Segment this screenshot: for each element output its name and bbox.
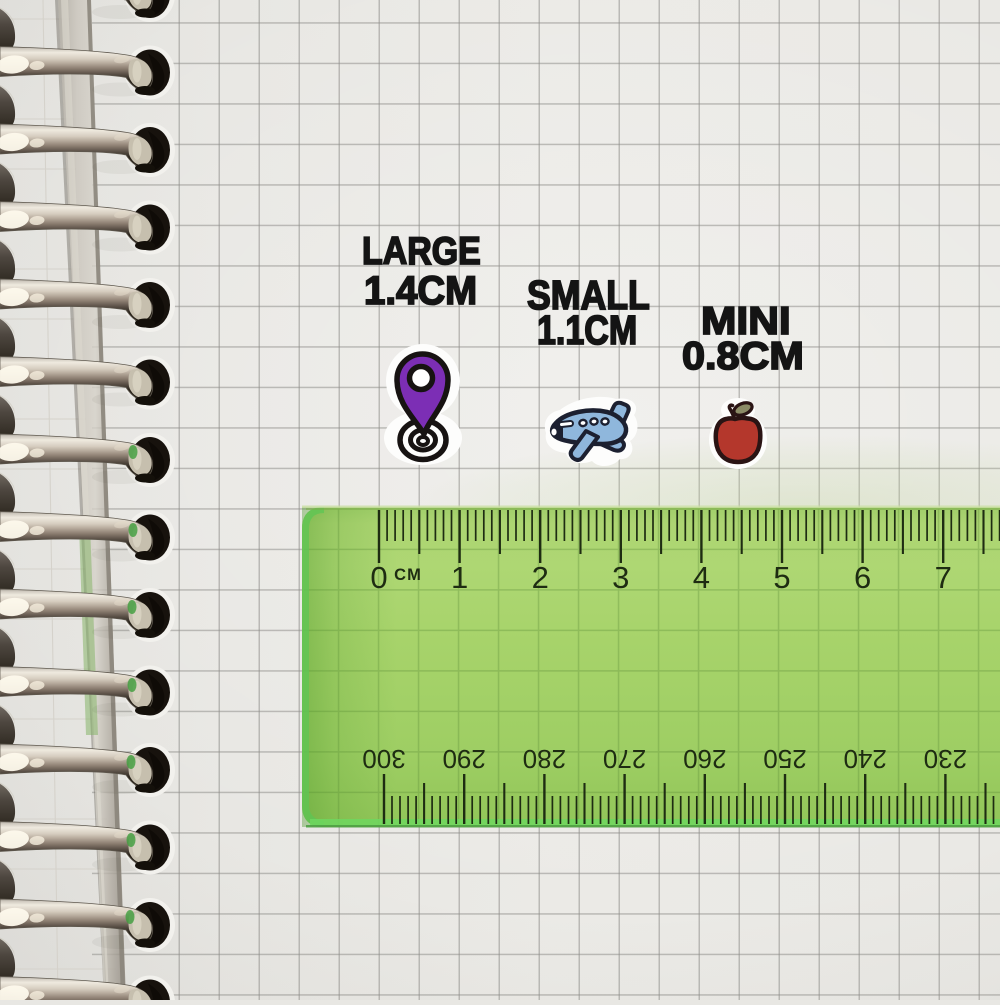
svg-text:CM: CM — [394, 566, 422, 584]
svg-text:0: 0 — [370, 560, 387, 595]
svg-text:300: 300 — [362, 744, 405, 774]
svg-text:290: 290 — [443, 744, 486, 774]
svg-text:4: 4 — [693, 560, 710, 595]
svg-text:7: 7 — [935, 560, 952, 595]
svg-text:280: 280 — [523, 744, 566, 774]
svg-text:2: 2 — [532, 560, 549, 595]
svg-text:270: 270 — [603, 744, 646, 774]
svg-text:230: 230 — [924, 744, 967, 774]
svg-text:1: 1 — [451, 560, 468, 595]
svg-text:3: 3 — [612, 560, 629, 595]
svg-text:260: 260 — [683, 744, 726, 774]
svg-text:250: 250 — [763, 744, 806, 774]
svg-text:240: 240 — [844, 744, 887, 774]
svg-text:5: 5 — [773, 560, 790, 595]
svg-text:6: 6 — [854, 560, 871, 595]
